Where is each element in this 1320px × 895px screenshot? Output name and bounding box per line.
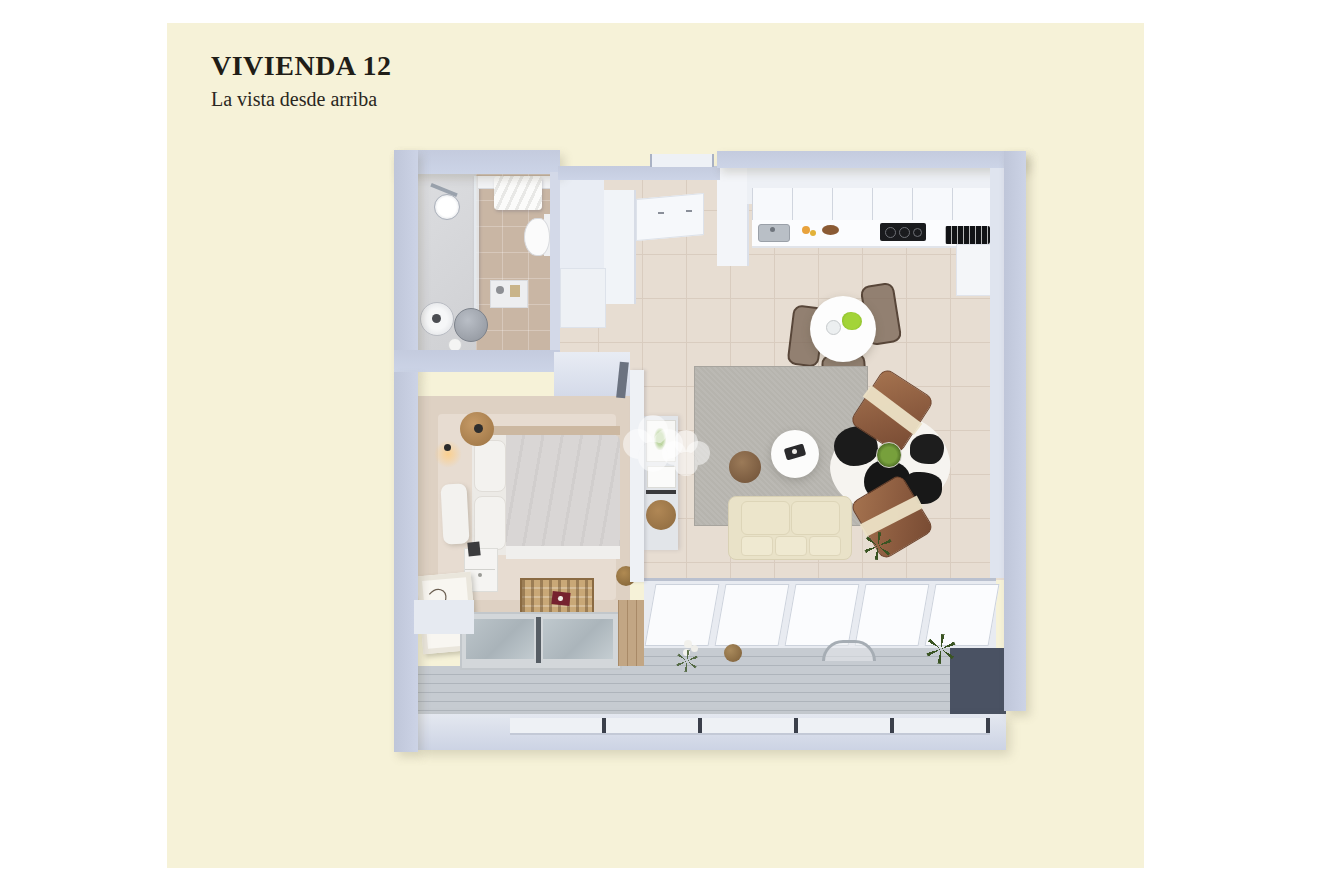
shower-glass-panel (474, 176, 479, 316)
washer-door (432, 314, 441, 323)
sofa-icon (728, 496, 852, 560)
shelf-item (496, 286, 504, 294)
book-icon (551, 591, 570, 606)
nightstand-drawer-line (465, 569, 495, 570)
sliding-door-panel (715, 584, 790, 646)
toilet-icon (524, 218, 550, 256)
plate (826, 320, 841, 335)
wardrobe-icon (604, 190, 636, 304)
wicker-ball-icon (724, 644, 742, 662)
burner (899, 227, 910, 238)
cooktop-icon (880, 223, 926, 241)
hall-column-wall (560, 178, 604, 270)
window-mullion (536, 617, 541, 663)
watermark-lobe (674, 452, 698, 476)
wall-bathroom-left (394, 150, 418, 372)
palm-plant-icon (926, 634, 956, 664)
shelf-item (510, 285, 520, 297)
sliding-door-panel (645, 584, 720, 646)
table-plant-icon (842, 312, 862, 330)
glass-railing-icon (510, 718, 990, 735)
terrace-deck-left (418, 666, 644, 714)
wall-hall-top (558, 166, 720, 180)
nightstand-knob (478, 573, 482, 577)
hall-cabinet (560, 268, 606, 328)
wall-lamp-icon (444, 444, 451, 451)
wall-bathroom-top (394, 150, 560, 174)
mini-frame (467, 541, 480, 556)
book-emblem (558, 596, 563, 601)
closet-handle (658, 212, 664, 214)
wall-bedroom-bay (414, 600, 474, 634)
entry-door-icon (650, 154, 714, 167)
burner (913, 228, 922, 237)
vessel-sink-icon (454, 308, 488, 342)
watermark-logo-icon (622, 412, 712, 496)
wall-bathroom-bottom (394, 350, 560, 372)
watermark-lobe (638, 442, 668, 472)
bedroom-window (460, 612, 622, 670)
pillow-icon (474, 440, 506, 492)
bedside-decor (474, 424, 483, 433)
throw-blanket-icon (440, 483, 469, 544)
threshold-wood-floor (618, 600, 644, 666)
window-pane (466, 619, 534, 659)
sofa-back-cushion (741, 501, 790, 535)
page-title: VIVIENDA 12 (211, 50, 392, 82)
sofa-seat-cushion (775, 536, 807, 556)
pouf-icon (729, 451, 761, 483)
fruit-bowl-icon (822, 225, 839, 235)
bed-sheet-edge (506, 546, 620, 559)
bath-shelf (490, 280, 528, 308)
faucet (770, 227, 775, 232)
bedroom (418, 396, 630, 618)
wall-bathroom-right (550, 172, 560, 352)
burner (885, 227, 896, 238)
sliding-door-panel (785, 584, 860, 646)
fridge-icon (717, 168, 749, 266)
kitchen-cabinets (752, 188, 990, 220)
dining-table-icon (810, 296, 876, 362)
entry-closet-doors (636, 193, 704, 241)
kitchen (714, 148, 1006, 298)
kitchen-return-cabinet (956, 244, 992, 296)
wall-bedroom-left (394, 372, 418, 752)
bowl-plant-icon (876, 442, 902, 468)
sliding-door-panel (855, 584, 930, 646)
palm-plant-icon (676, 650, 698, 672)
terrace-dark-wall (950, 648, 1006, 714)
bathroom (394, 148, 560, 374)
fruit-icon (810, 230, 816, 236)
cowhide-patch (910, 434, 944, 464)
duvet-icon (506, 435, 620, 559)
console-stool (646, 500, 676, 530)
sofa-seat-cushion (741, 536, 773, 556)
grill-vent-icon (945, 226, 990, 244)
wall-right-outer (1004, 151, 1026, 711)
cup (792, 449, 797, 454)
towel-icon (494, 176, 542, 210)
sofa-back-cushion (791, 501, 840, 535)
fruit-icon (802, 226, 810, 234)
sofa-seat-cushion (809, 536, 841, 556)
shower-head-icon (434, 194, 460, 220)
living-room (684, 358, 1006, 583)
closet-handle (686, 210, 692, 212)
window-pane (543, 619, 613, 659)
wall-kitchen-top (717, 151, 1026, 168)
page-subtitle: La vista desde arriba (211, 88, 377, 111)
floor-plan (394, 148, 1040, 768)
floor-plant-icon (864, 532, 892, 560)
